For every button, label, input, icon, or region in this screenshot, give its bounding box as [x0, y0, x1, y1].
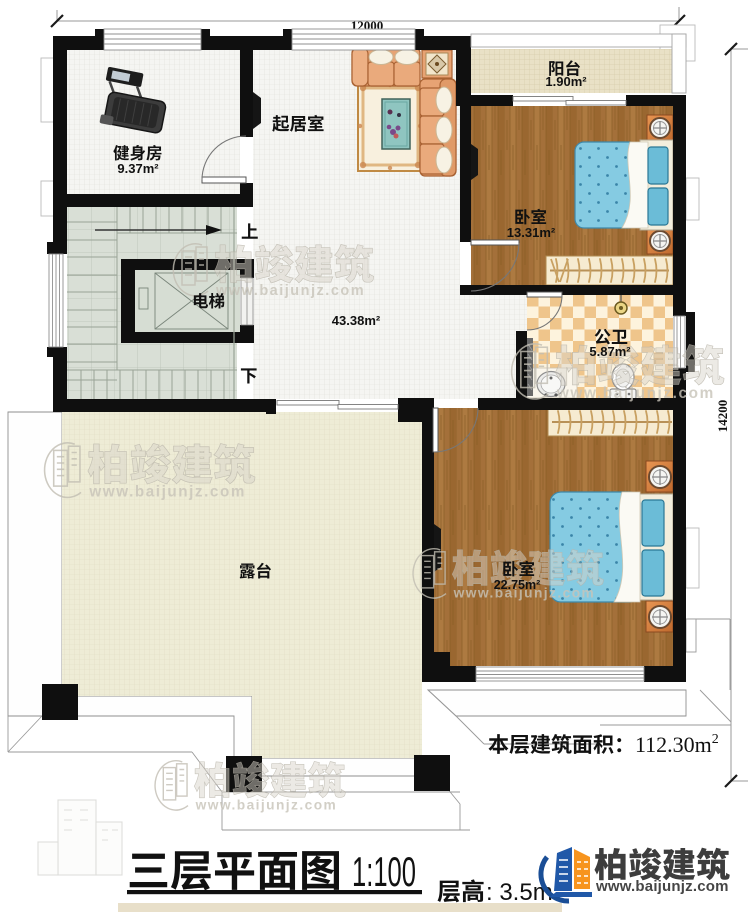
- svg-text:22.75m²: 22.75m²: [494, 578, 541, 592]
- svg-text:112.30m2: 112.30m2: [635, 732, 719, 757]
- svg-text:13.31m²: 13.31m²: [507, 225, 556, 240]
- svg-text:43.38m²: 43.38m²: [332, 313, 381, 328]
- svg-text:www.baijunjz.com: www.baijunjz.com: [595, 878, 729, 895]
- svg-text:1.90m²: 1.90m²: [545, 74, 587, 89]
- svg-text:1:100: 1:100: [352, 848, 416, 895]
- svg-text:9.37m²: 9.37m²: [117, 161, 159, 176]
- svg-text:14200: 14200: [715, 400, 730, 433]
- svg-text:5.87m²: 5.87m²: [589, 344, 631, 359]
